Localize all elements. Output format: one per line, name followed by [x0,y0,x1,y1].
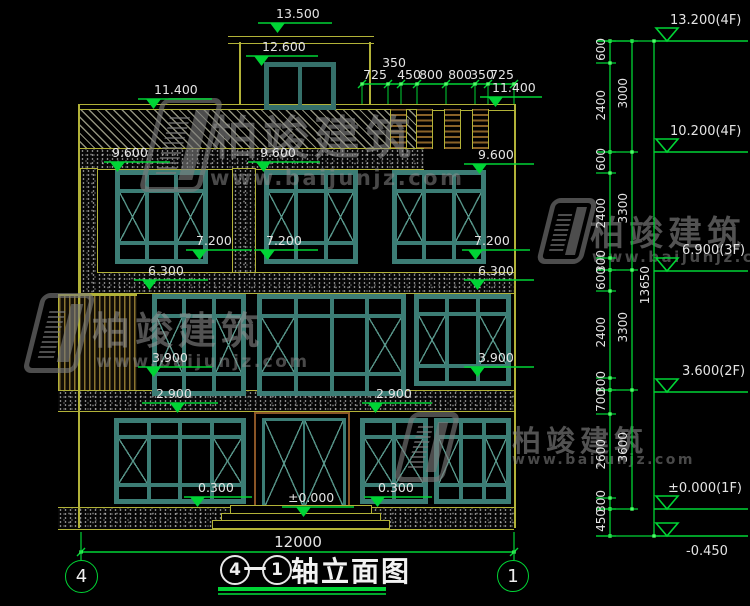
title-underline-thick [218,587,386,591]
axis-bubble-1: 1 [497,560,529,592]
dim-label: 725 [363,67,387,82]
level-label: 7.200 [266,233,302,248]
title-axis-circle-1: 1 [262,555,292,585]
level-label: 11.400 [492,80,536,95]
dim-label: 2600 [594,439,608,470]
dim-label: 2400 [594,90,608,121]
level-label: 11.400 [154,82,198,97]
level-label: 2.900 [376,386,412,401]
title-axis-num: 4 [229,560,241,580]
dim-label: 600 [594,267,608,290]
level-label: 9.600 [478,147,514,162]
dim-label: 450 [397,67,421,82]
drawing-title: 轴立面图 [291,550,411,590]
dim-label: 725 [490,67,514,82]
level-label: 7.200 [474,233,510,248]
level-label: 0.300 [378,480,414,495]
elevation-drawing: 13.500 12.600 11.400 11.400 9.600 9.600 … [0,0,750,606]
dim-label: 3300 [616,312,630,343]
level-label: 12.600 [262,39,306,54]
dim-label: 800 [448,67,472,82]
dim-label: 700 [594,389,608,412]
level-label: 3.900 [152,350,188,365]
level-label: 9.600 [112,145,148,160]
dim-label: 450 [594,509,608,532]
dim-label: 2400 [594,317,608,348]
level-label: 2.900 [156,386,192,401]
dim-label: 3600 [616,432,630,463]
dim-label: 800 [419,67,443,82]
right-level-label: 3.600(2F) [682,364,745,379]
axis-number: 1 [507,566,518,587]
title-axis-num: 1 [271,560,283,580]
dim-label: 3000 [616,78,630,109]
dim-label: 13650 [638,266,652,304]
level-label: ±0.000 [288,490,334,505]
right-level-label: 13.200(4F) [670,13,741,28]
level-label: 6.300 [478,263,514,278]
axis-bubble-4: 4 [65,560,98,593]
level-label: 13.500 [276,6,320,21]
right-level-label: 6.900(3F) [682,243,745,258]
dim-label: 600 [594,38,608,61]
level-label: 3.900 [478,350,514,365]
dim-label: 600 [594,148,608,171]
dim-label: 2400 [594,198,608,229]
title-underline-thin [218,593,386,595]
level-label: 7.200 [196,233,232,248]
level-label: 9.600 [260,145,296,160]
level-label: 0.300 [198,480,234,495]
right-level-label: 10.200(4F) [670,124,741,139]
right-level-label: -0.450 [686,544,728,559]
level-label: 6.300 [148,263,184,278]
dim-label: 3300 [616,193,630,224]
right-level-label: ±0.000(1F) [668,481,742,496]
axis-number: 4 [76,566,87,587]
overall-width-label: 12000 [274,533,322,551]
